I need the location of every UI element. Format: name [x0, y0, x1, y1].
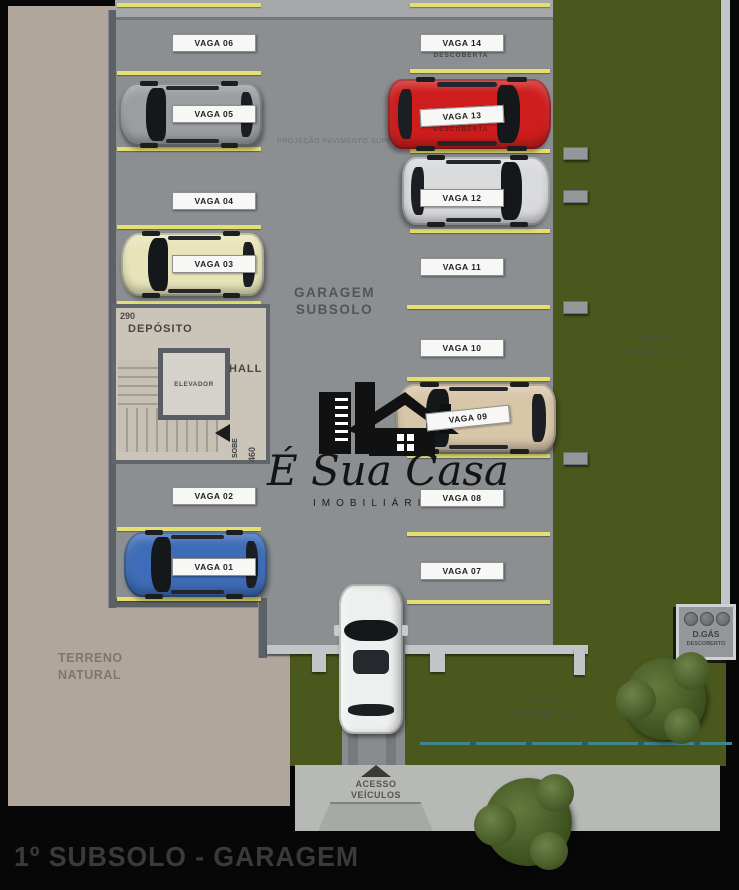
spot-label-text: VAGA 14 — [443, 38, 482, 48]
gas-label: D.GÁS — [679, 629, 733, 639]
car-side-glass — [437, 82, 497, 87]
tree — [484, 778, 572, 866]
parking-line — [410, 69, 550, 73]
terrain-natural-label: TERRENO NATURAL — [58, 650, 123, 684]
gas-depot: D.GÁS DESCOBERTO — [676, 604, 736, 660]
terrain-line2: NATURAL — [58, 667, 123, 684]
parking-line — [410, 229, 550, 233]
tree-foliage — [672, 652, 710, 690]
parking-line — [117, 147, 261, 151]
parking-line — [407, 305, 550, 309]
car-wheel — [510, 449, 529, 454]
car-wheel — [221, 81, 238, 86]
brand-name: É Sua Casa — [267, 446, 509, 495]
car-side-glass — [166, 86, 219, 90]
car-side-glass — [446, 160, 501, 165]
parking-line — [407, 600, 550, 604]
car-wheel — [416, 77, 436, 82]
spot-label-text: VAGA 09 — [448, 411, 488, 425]
parking-line — [407, 532, 550, 536]
car-rear-window — [532, 394, 546, 443]
stairs-direction-arrow-icon — [215, 424, 230, 442]
pillar — [563, 301, 588, 314]
spot-label-vaga-01: VAGA 01 — [172, 558, 256, 576]
car-rear-window — [398, 89, 413, 139]
car-wheel — [223, 231, 240, 236]
car-wheel — [427, 222, 445, 227]
elevator-label: ELEVADOR — [174, 381, 214, 388]
car-wheel — [142, 231, 159, 236]
spot-label-vaga-07: VAGA 07 — [420, 562, 504, 580]
spot-label-text: VAGA 01 — [195, 562, 234, 572]
floor-plan-canvas: 290 DEPÓSITO ELEVADOR HALL SOBE 460 GARA… — [0, 0, 739, 890]
parking-line — [117, 3, 261, 7]
core-block: 290 DEPÓSITO ELEVADOR HALL SOBE 460 — [112, 304, 270, 464]
parking-line — [117, 71, 261, 75]
depot-label: DEPÓSITO — [128, 323, 193, 335]
access-line2: VEÍCULOS — [331, 790, 421, 801]
car-wheel — [226, 594, 243, 599]
site-wall-a — [267, 645, 343, 654]
site-wall-post-b — [430, 650, 445, 672]
dimension-290: 290 — [120, 311, 135, 321]
permeable-line1: ÁREA — [598, 331, 708, 346]
pillar — [563, 147, 588, 160]
car-wheel — [416, 146, 436, 151]
car-wheel — [510, 155, 528, 160]
spot-note-vaga-14: DESCOBERTA — [420, 52, 502, 59]
access-line1: ACESSO — [331, 779, 421, 790]
stairs-sobe-label: SOBE — [232, 418, 239, 458]
car-wheel — [140, 81, 157, 86]
spot-label-vaga-11: VAGA 11 — [420, 258, 504, 276]
tree-foliage — [536, 774, 574, 812]
car-wheel — [145, 594, 162, 599]
spot-note-vaga-13: DESCOBERTA — [420, 126, 502, 133]
spot-label-vaga-06: VAGA 06 — [172, 34, 256, 52]
tree-foliage — [474, 804, 516, 846]
car-wheel — [142, 293, 159, 298]
spot-label-text: VAGA 06 — [195, 38, 234, 48]
spot-label-text: VAGA 12 — [443, 193, 482, 203]
spot-label-text: VAGA 03 — [195, 259, 234, 269]
spot-label-text: VAGA 05 — [195, 109, 234, 119]
car-mirror — [334, 625, 340, 636]
car-windshield — [146, 88, 166, 141]
car-wheel — [226, 530, 243, 535]
parking-line — [410, 3, 550, 7]
car-side-glass — [171, 590, 224, 595]
car-windshield — [501, 162, 522, 219]
spot-label-text: VAGA 10 — [443, 343, 482, 353]
garage-title-line2: SUBSOLO — [272, 301, 397, 318]
spot-label-text: VAGA 04 — [195, 196, 234, 206]
gas-note: DESCOBERTO — [679, 641, 733, 647]
car-windshield — [344, 620, 398, 641]
car-mirror — [402, 625, 408, 636]
spot-label-vaga-03: VAGA 03 — [172, 255, 256, 273]
parking-line — [117, 225, 261, 229]
garage-wall-center-vertical — [258, 598, 267, 658]
car-rear-window — [348, 704, 394, 716]
terrain-natural-area-bottom — [8, 600, 290, 806]
spot-label-vaga-02: VAGA 02 — [172, 487, 256, 505]
spot-label-text: VAGA 08 — [443, 493, 482, 503]
car-side-glass — [437, 141, 497, 146]
spot-label-text: VAGA 07 — [443, 566, 482, 576]
spot-label-vaga-04: VAGA 04 — [172, 192, 256, 210]
car-wheel — [145, 530, 162, 535]
permeable-line2: PERMEÁVEL — [598, 346, 708, 361]
car-windshield — [151, 537, 171, 592]
car-side-glass — [446, 218, 501, 223]
tree-foliage — [664, 708, 700, 744]
garage-title-line1: GARAGEM — [272, 284, 397, 301]
car-side-glass — [171, 535, 224, 540]
tree-foliage — [616, 680, 656, 720]
access-ramp — [318, 802, 433, 831]
car-wheel — [221, 143, 238, 148]
car-side-glass — [168, 289, 221, 293]
car-wheel — [140, 143, 157, 148]
spot-label-vaga-10: VAGA 10 — [420, 339, 504, 357]
permeable-line2: PERMEÁVEL — [478, 707, 613, 722]
car-wheel — [510, 382, 529, 387]
car-side-glass — [166, 139, 219, 143]
elevator-shaft: ELEVADOR — [158, 348, 230, 420]
permeable-area-label: ÁREA PERMEÁVEL — [478, 692, 613, 722]
car-roof-window — [353, 650, 389, 674]
pillar — [563, 452, 588, 465]
spot-label-text: VAGA 13 — [442, 110, 481, 122]
car-wheel — [427, 155, 445, 160]
car-wheel — [507, 77, 527, 82]
site-wall-post-c — [574, 648, 585, 675]
tree-foliage — [530, 832, 568, 870]
garage-title: GARAGEM SUBSOLO — [272, 284, 397, 318]
tree — [624, 658, 706, 740]
site-wall-post-a — [312, 652, 326, 672]
car-side-glass — [168, 236, 221, 240]
permeable-line1: ÁREA — [478, 692, 613, 707]
spot-label-text: VAGA 02 — [195, 491, 234, 501]
spot-label-vaga-08: VAGA 08 — [420, 489, 504, 507]
spot-label-vaga-14: VAGA 14 — [420, 34, 504, 52]
car-windshield — [148, 238, 168, 291]
car-wheel — [223, 293, 240, 298]
car-entering — [339, 584, 403, 734]
permeable-area-label: ÁREA PERMEÁVEL — [598, 331, 708, 361]
gas-cylinder-icon — [684, 612, 698, 626]
spot-label-vaga-05: VAGA 05 — [172, 105, 256, 123]
gas-cylinder-icon — [700, 612, 714, 626]
page-title: 1º SUBSOLO - GARAGEM — [14, 841, 359, 873]
access-vehicles-label: ACESSO VEÍCULOS — [331, 779, 421, 801]
terrain-line1: TERRENO — [58, 650, 123, 667]
spot-label-vaga-12: VAGA 12 — [420, 189, 504, 207]
car-wheel — [510, 222, 528, 227]
pillar — [563, 190, 588, 203]
spot-label-text: VAGA 11 — [443, 262, 481, 272]
boundary-wall-right — [721, 0, 730, 660]
gas-cylinder-icon — [716, 612, 730, 626]
garage-top-slab-edge — [115, 17, 553, 20]
car-wheel — [507, 146, 527, 151]
access-arrow-icon — [361, 765, 391, 777]
